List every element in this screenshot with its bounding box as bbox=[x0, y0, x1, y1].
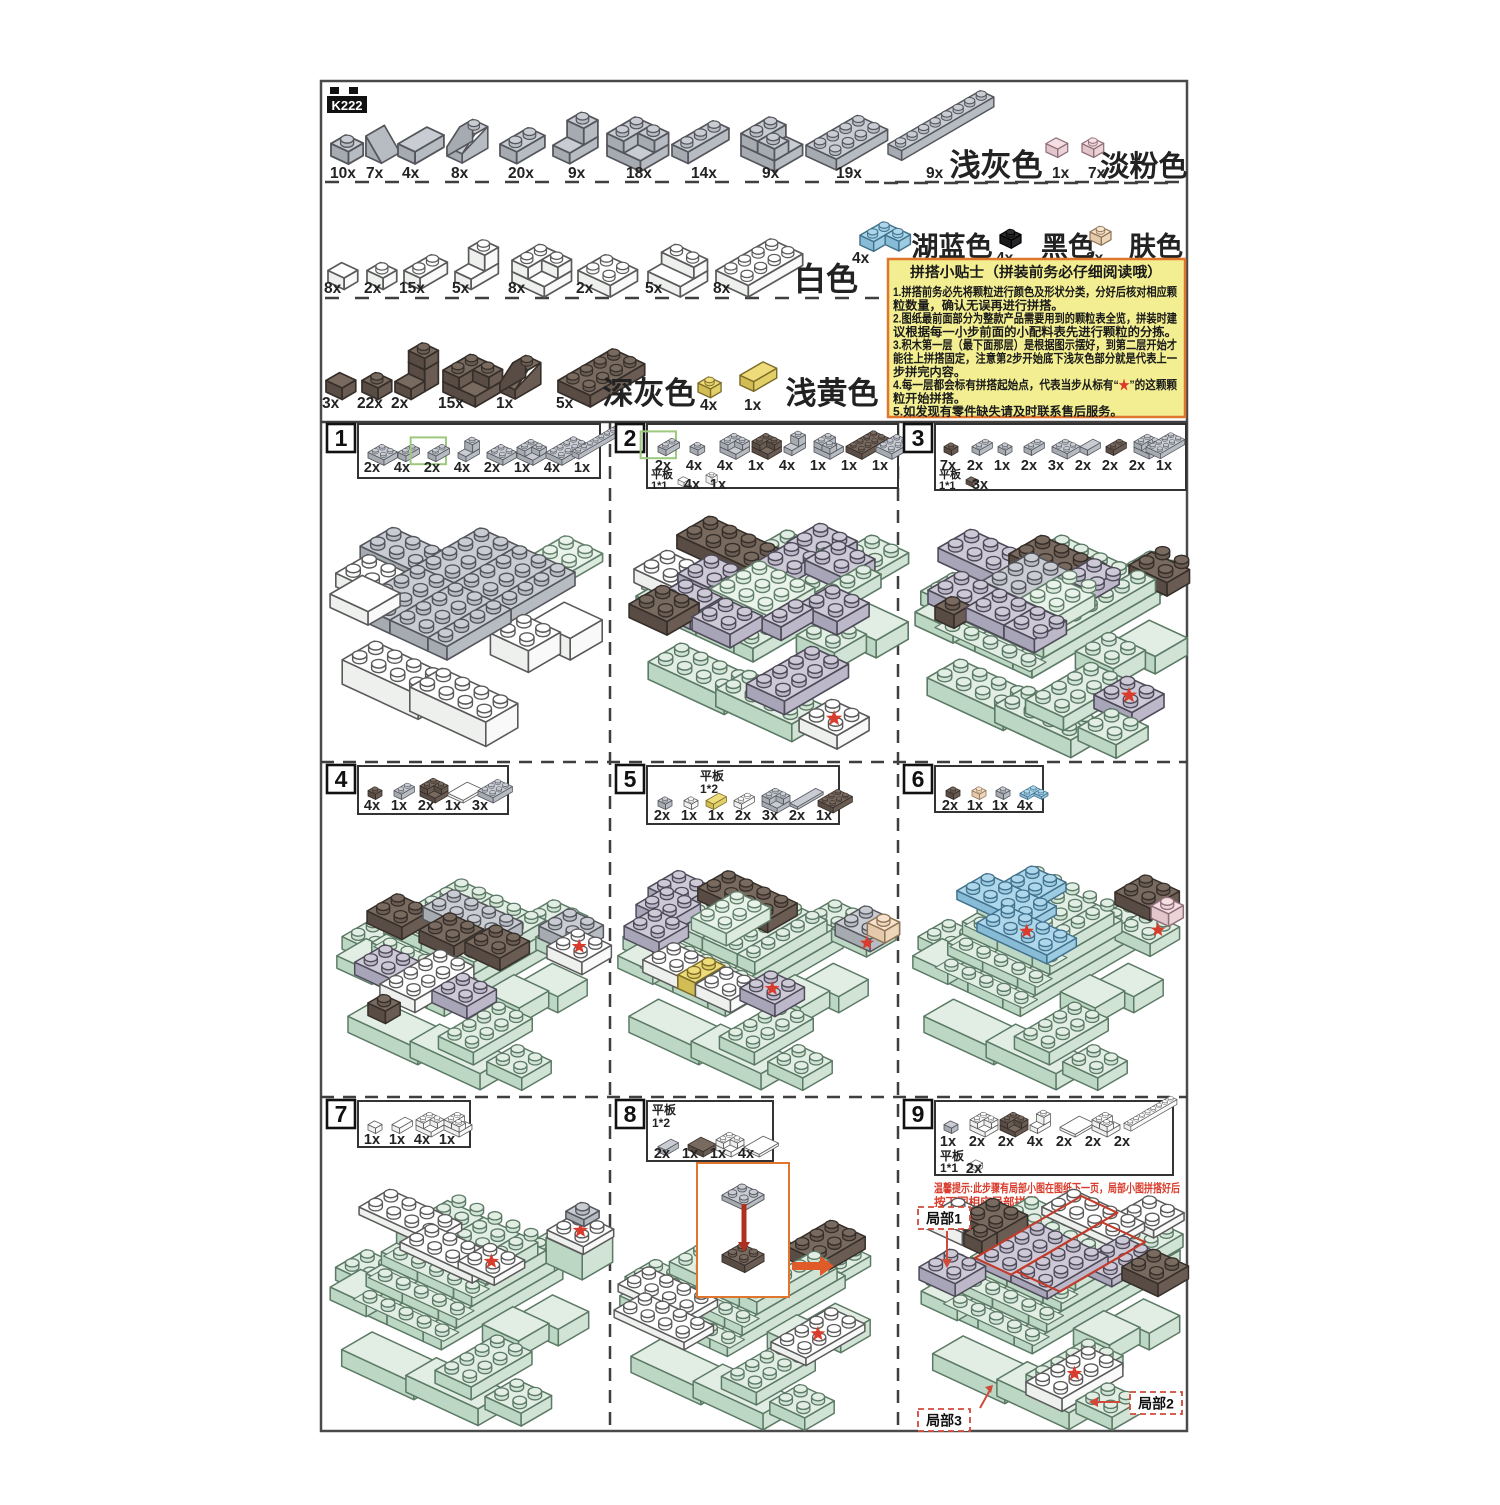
svg-text:4x: 4x bbox=[738, 1146, 754, 1162]
svg-text:1x: 1x bbox=[710, 1146, 726, 1162]
svg-text:能往上拼搭固定，注意第2步开始底下浅灰色部分就是代表上一: 能往上拼搭固定，注意第2步开始底下浅灰色部分就是代表上一 bbox=[893, 351, 1177, 366]
svg-text:1x: 1x bbox=[748, 458, 764, 474]
svg-text:9x: 9x bbox=[568, 165, 586, 182]
svg-text:8x: 8x bbox=[451, 165, 469, 182]
svg-text:8x: 8x bbox=[508, 280, 526, 297]
svg-text:10x: 10x bbox=[330, 165, 356, 182]
svg-text:粒数量，确认无误再进行拼搭。: 粒数量，确认无误再进行拼搭。 bbox=[893, 297, 1064, 312]
svg-text:2x: 2x bbox=[418, 798, 434, 814]
svg-text:1*2: 1*2 bbox=[652, 1116, 670, 1130]
svg-text:3.积木第一层（最下面那层）是根据图示摆好，到第二层开始才: 3.积木第一层（最下面那层）是根据图示摆好，到第二层开始才 bbox=[893, 337, 1177, 352]
svg-text:1x: 1x bbox=[514, 460, 530, 476]
svg-text:K222: K222 bbox=[331, 98, 362, 113]
svg-text:深灰色: 深灰色 bbox=[603, 376, 696, 411]
svg-text:1x: 1x bbox=[681, 808, 697, 824]
svg-text:1x: 1x bbox=[940, 1134, 956, 1150]
svg-text:3x: 3x bbox=[972, 477, 988, 493]
svg-text:局部3: 局部3 bbox=[926, 1413, 962, 1429]
svg-text:2x: 2x bbox=[967, 458, 983, 474]
svg-text:3x: 3x bbox=[322, 395, 340, 412]
svg-text:2x: 2x bbox=[484, 460, 500, 476]
svg-text:4x: 4x bbox=[402, 165, 420, 182]
svg-text:肤色: 肤色 bbox=[1129, 231, 1183, 262]
svg-text:2x: 2x bbox=[1021, 458, 1037, 474]
svg-text:局部1: 局部1 bbox=[926, 1211, 962, 1227]
svg-text:4x: 4x bbox=[700, 397, 718, 414]
svg-text:3x: 3x bbox=[472, 798, 488, 814]
svg-text:平板: 平板 bbox=[700, 768, 725, 783]
svg-text:4x: 4x bbox=[394, 460, 410, 476]
svg-text:2x: 2x bbox=[942, 798, 958, 814]
svg-text:20x: 20x bbox=[508, 165, 534, 182]
svg-text:1x: 1x bbox=[445, 798, 461, 814]
svg-text:4x: 4x bbox=[1027, 1134, 1043, 1150]
svg-text:平板: 平板 bbox=[651, 467, 674, 481]
svg-text:8x: 8x bbox=[713, 280, 731, 297]
svg-text:4x: 4x bbox=[686, 458, 702, 474]
svg-text:2x: 2x bbox=[789, 808, 805, 824]
svg-text:1x: 1x bbox=[1156, 458, 1172, 474]
svg-text:4x: 4x bbox=[454, 460, 470, 476]
svg-text:2x: 2x bbox=[391, 395, 409, 412]
svg-text:2x: 2x bbox=[1085, 1134, 1101, 1150]
svg-text:4x: 4x bbox=[1017, 798, 1033, 814]
svg-text:1: 1 bbox=[335, 425, 348, 451]
svg-text:2x: 2x bbox=[969, 1134, 985, 1150]
svg-text:局部2: 局部2 bbox=[1138, 1396, 1174, 1412]
svg-text:1x: 1x bbox=[682, 1146, 698, 1162]
svg-text:湖蓝色: 湖蓝色 bbox=[912, 231, 993, 262]
svg-text:浅黄色: 浅黄色 bbox=[786, 376, 879, 411]
svg-text:白色: 白色 bbox=[794, 261, 858, 297]
svg-text:2x: 2x bbox=[424, 460, 440, 476]
svg-text:3x: 3x bbox=[1048, 458, 1064, 474]
svg-text:粒开始拼搭。: 粒开始拼搭。 bbox=[893, 390, 966, 405]
svg-text:5: 5 bbox=[624, 766, 637, 792]
svg-text:1x: 1x bbox=[389, 1132, 405, 1148]
svg-text:2x: 2x bbox=[1075, 458, 1091, 474]
svg-text:3: 3 bbox=[912, 425, 925, 451]
svg-text:1x: 1x bbox=[744, 397, 762, 414]
svg-text:步拼完内容。: 步拼完内容。 bbox=[893, 364, 966, 379]
svg-text:2x: 2x bbox=[576, 280, 594, 297]
svg-text:1*1: 1*1 bbox=[940, 1161, 958, 1175]
svg-text:2: 2 bbox=[624, 425, 637, 451]
svg-text:1x: 1x bbox=[841, 458, 857, 474]
svg-text:2x: 2x bbox=[1114, 1134, 1130, 1150]
svg-text:1x: 1x bbox=[364, 1132, 380, 1148]
svg-text:淡粉色: 淡粉色 bbox=[1100, 149, 1187, 183]
svg-text:15x: 15x bbox=[438, 395, 464, 412]
svg-text:温馨提示:此步骤有局部小图在图纸下一页，局部小图拼搭好后: 温馨提示:此步骤有局部小图在图纸下一页，局部小图拼搭好后 bbox=[934, 1181, 1180, 1195]
svg-text:1x: 1x bbox=[816, 808, 832, 824]
svg-text:2x: 2x bbox=[1129, 458, 1145, 474]
svg-text:1x: 1x bbox=[391, 798, 407, 814]
svg-text:4x: 4x bbox=[779, 458, 795, 474]
svg-text:4x: 4x bbox=[544, 460, 560, 476]
svg-text:2x: 2x bbox=[364, 460, 380, 476]
svg-text:1x: 1x bbox=[496, 395, 514, 412]
svg-text:1x: 1x bbox=[708, 808, 724, 824]
svg-text:1.拼搭前务必先将颗粒进行颜色及形状分类，分好后核对相应颗: 1.拼搭前务必先将颗粒进行颜色及形状分类，分好后核对相应颗 bbox=[893, 284, 1178, 299]
svg-text:拼搭小贴士（拼装前务必仔细阅读哦）: 拼搭小贴士（拼装前务必仔细阅读哦） bbox=[910, 264, 1162, 280]
svg-text:浅灰色: 浅灰色 bbox=[950, 148, 1043, 183]
svg-text:5.如发现有零件缺失请及时联系售后服务。: 5.如发现有零件缺失请及时联系售后服务。 bbox=[893, 404, 1123, 419]
svg-text:1x: 1x bbox=[574, 460, 590, 476]
svg-text:4x: 4x bbox=[684, 477, 700, 493]
svg-text:2x: 2x bbox=[966, 1161, 982, 1177]
svg-text:2x: 2x bbox=[1102, 458, 1118, 474]
svg-text:平板: 平板 bbox=[939, 467, 962, 481]
svg-text:1x: 1x bbox=[994, 458, 1010, 474]
svg-text:2x: 2x bbox=[654, 808, 670, 824]
svg-text:22x: 22x bbox=[357, 395, 383, 412]
svg-text:1x: 1x bbox=[1052, 165, 1070, 182]
svg-text:5x: 5x bbox=[452, 280, 470, 297]
svg-text:4x: 4x bbox=[717, 458, 733, 474]
svg-text:18x: 18x bbox=[626, 165, 652, 182]
svg-text:1*1: 1*1 bbox=[939, 480, 956, 492]
svg-text:2x: 2x bbox=[1056, 1134, 1072, 1150]
svg-text:1x: 1x bbox=[872, 458, 888, 474]
svg-text:5x: 5x bbox=[556, 395, 574, 412]
svg-text:8: 8 bbox=[624, 1101, 637, 1127]
svg-text:2x: 2x bbox=[364, 280, 382, 297]
svg-text:9x: 9x bbox=[762, 165, 780, 182]
svg-text:1x: 1x bbox=[810, 458, 826, 474]
svg-text:2.图纸最前面部分为整款产品需要用到的颗粒表全览，拼装时建: 2.图纸最前面部分为整款产品需要用到的颗粒表全览，拼装时建 bbox=[893, 311, 1178, 326]
svg-text:9: 9 bbox=[912, 1101, 925, 1127]
svg-text:议根据每一小步前面的小配料表先进行颗粒的分拣。: 议根据每一小步前面的小配料表先进行颗粒的分拣。 bbox=[893, 324, 1177, 339]
svg-text:6: 6 bbox=[912, 766, 925, 792]
svg-text:4: 4 bbox=[335, 766, 348, 792]
svg-text:2x: 2x bbox=[998, 1134, 1014, 1150]
svg-text:5x: 5x bbox=[645, 280, 663, 297]
svg-text:19x: 19x bbox=[836, 165, 862, 182]
svg-text:1*1: 1*1 bbox=[651, 480, 668, 492]
svg-text:4x: 4x bbox=[414, 1132, 430, 1148]
svg-text:1x: 1x bbox=[967, 798, 983, 814]
svg-text:8x: 8x bbox=[324, 280, 342, 297]
svg-text:7: 7 bbox=[335, 1101, 348, 1127]
svg-text:4x: 4x bbox=[364, 798, 380, 814]
svg-text:14x: 14x bbox=[691, 165, 717, 182]
svg-text:1x: 1x bbox=[992, 798, 1008, 814]
svg-text:7x: 7x bbox=[366, 165, 384, 182]
svg-text:1*2: 1*2 bbox=[700, 782, 718, 796]
svg-text:2x: 2x bbox=[654, 1146, 670, 1162]
svg-text:平板: 平板 bbox=[652, 1102, 677, 1117]
svg-text:15x: 15x bbox=[399, 280, 425, 297]
svg-text:9x: 9x bbox=[926, 165, 944, 182]
svg-text:3x: 3x bbox=[762, 808, 778, 824]
svg-text:1x: 1x bbox=[710, 477, 726, 493]
svg-text:4.每一层都会标有拼搭起始点，代表当步从标有“★”的这颗颗: 4.每一层都会标有拼搭起始点，代表当步从标有“★”的这颗颗 bbox=[893, 377, 1178, 392]
svg-text:2x: 2x bbox=[735, 808, 751, 824]
svg-text:1x: 1x bbox=[439, 1132, 455, 1148]
